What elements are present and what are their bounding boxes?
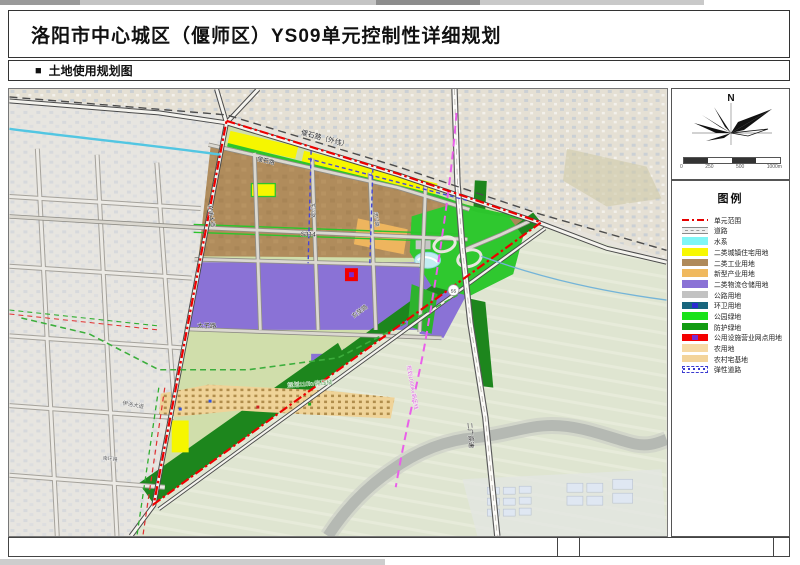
- scan-artifact-bottom: [0, 559, 385, 565]
- title-block-cell: [557, 538, 579, 556]
- section-bar: ■ 土地使用规划图: [8, 60, 790, 81]
- highway-shield: 55: [448, 285, 459, 296]
- road-label: S314: [301, 231, 317, 239]
- title-block-cell: [579, 538, 773, 556]
- legend-swatch: [682, 344, 708, 352]
- legend-swatch-dot: [682, 302, 708, 310]
- planning-sheet: 洛阳市中心城区（偃师区）YS09单元控制性详细规划 ■ 土地使用规划图: [0, 0, 800, 565]
- legend-item: 新型产业用地: [682, 269, 789, 277]
- legend-item: 公路用地: [682, 291, 789, 299]
- legend-item: 弹性道路: [682, 366, 789, 374]
- legend-dot: [692, 335, 698, 340]
- north-label: N: [727, 93, 734, 104]
- legend-item: 农用地: [682, 344, 789, 352]
- section-title: 土地使用规划图: [49, 62, 133, 79]
- legend-item: 公园绿地: [682, 312, 789, 320]
- legend-item: 农村宅基地: [682, 355, 789, 363]
- svg-text:55: 55: [451, 289, 457, 295]
- legend-swatch: [682, 259, 708, 267]
- legend-items: 单元范围 道路 水系 二类城镇住宅用地 二类工业用地 新型产业用地: [682, 216, 789, 373]
- legend-item: 二类物流仓储用地: [682, 280, 789, 288]
- legend-item: 环卫用地: [682, 302, 789, 310]
- legend-item: 二类城镇住宅用地: [682, 248, 789, 256]
- legend-item: 二类工业用地: [682, 259, 789, 267]
- map-canvas: 55 偃石路（外线） 偃石路 S314 东兴路 忠兴路 杜甫大道 太子路 玄奘路…: [9, 89, 667, 536]
- legend-item: 公用设施营业网点用地: [682, 334, 789, 342]
- scale-bar: [683, 157, 781, 164]
- legend-swatch: [682, 269, 708, 277]
- legend-box: 图例 单元范围 道路 水系 二类城镇住宅用地 二类工业用地: [671, 180, 790, 537]
- legend-swatch: [682, 355, 708, 363]
- legend-title: 图例: [672, 190, 789, 206]
- legend-swatch: [682, 280, 708, 288]
- legend-swatch-dot: [682, 334, 708, 342]
- legend-item: 水系: [682, 237, 789, 245]
- legend-swatch-road: [682, 227, 708, 235]
- title-block-cell: [9, 538, 557, 556]
- legend-swatch: [682, 291, 708, 299]
- legend-swatch: [682, 248, 708, 256]
- page-title: 洛阳市中心城区（偃师区）YS09单元控制性详细规划: [31, 21, 501, 48]
- legend-swatch: [682, 323, 708, 331]
- legend-item: 单元范围: [682, 216, 789, 224]
- scale-labels: 0 250 500 1000m: [680, 164, 782, 170]
- legend-swatch: [682, 237, 708, 245]
- legend-swatch-elastic: [682, 366, 708, 374]
- road-label: 太子路: [197, 321, 217, 330]
- utility-block-dot: [349, 272, 354, 277]
- legend-dot: [692, 303, 698, 308]
- section-marker-icon: ■: [35, 65, 42, 77]
- title-box: 洛阳市中心城区（偃师区）YS09单元控制性详细规划: [8, 10, 790, 58]
- legend-item: 防护绿地: [682, 323, 789, 331]
- legend-item: 道路: [682, 227, 789, 235]
- compass-box: N 0 250 500 1000m: [671, 88, 790, 180]
- north-arrow: N: [672, 89, 789, 149]
- legend-swatch-boundary: [682, 216, 708, 224]
- title-block-cell: [773, 538, 789, 556]
- legend-swatch: [682, 312, 708, 320]
- scan-artifact-top: [0, 0, 800, 5]
- land-use-map: 55 偃石路（外线） 偃石路 S314 东兴路 忠兴路 杜甫大道 太子路 玄奘路…: [8, 88, 668, 537]
- title-block-strip: [8, 537, 790, 557]
